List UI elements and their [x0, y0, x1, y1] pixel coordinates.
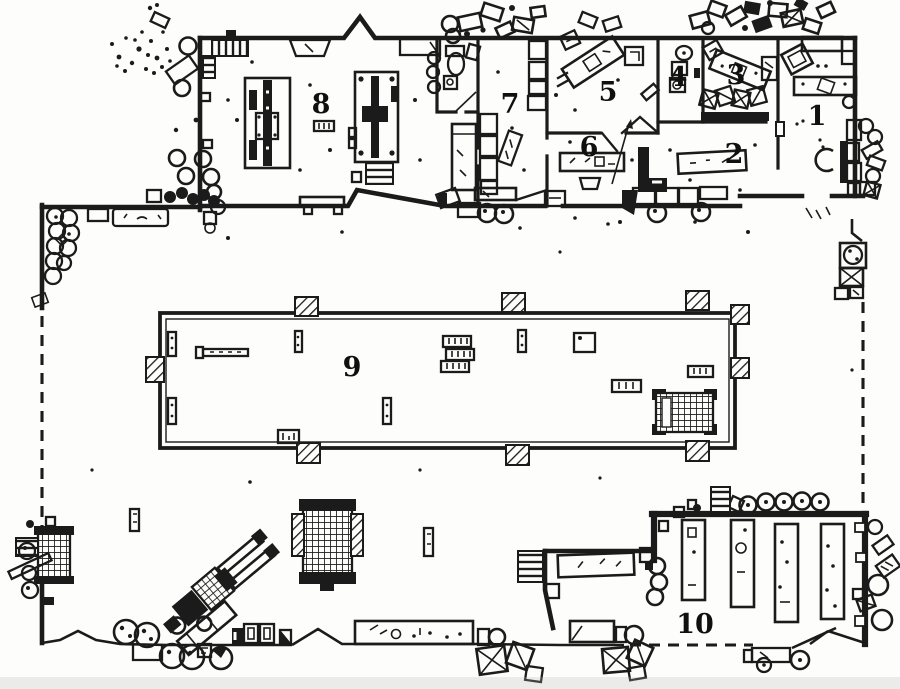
- scanned-floor-plan-page: 1 2 3 4 5 6 7 8 9 10: [0, 0, 900, 689]
- room2-furniture: [668, 143, 757, 199]
- central-hall: [146, 291, 749, 465]
- site-plan-drawing: 1 2 3 4 5 6 7 8 9 10: [0, 0, 900, 689]
- right-edge-objects: [835, 219, 866, 299]
- room-label-10: 10: [676, 609, 714, 640]
- room-label-9: 9: [343, 352, 362, 383]
- debris-dots-top-left: [110, 3, 172, 75]
- yard-objects: [8, 220, 853, 682]
- machinery: [156, 528, 293, 654]
- scan-edge-shadow: [0, 677, 900, 689]
- room-label-6: 6: [580, 132, 599, 163]
- room-label-3: 3: [727, 60, 746, 91]
- boundary-fence: [32, 205, 863, 660]
- room-label-1: 1: [808, 101, 827, 132]
- main-building: [200, 0, 885, 224]
- room7-furniture: [444, 41, 547, 200]
- room-label-5: 5: [599, 77, 618, 108]
- room-label-4: 4: [669, 62, 688, 93]
- hall-furniture: [168, 330, 717, 443]
- room6-furniture: [560, 117, 667, 192]
- room-label-8: 8: [312, 89, 331, 120]
- room-label-7: 7: [501, 89, 520, 120]
- room-label-2: 2: [725, 139, 744, 170]
- objects-right-of-building: [859, 119, 885, 199]
- tree-column-left: [166, 38, 221, 200]
- debris-top-right: [690, 0, 835, 34]
- room8-machines: [212, 30, 440, 214]
